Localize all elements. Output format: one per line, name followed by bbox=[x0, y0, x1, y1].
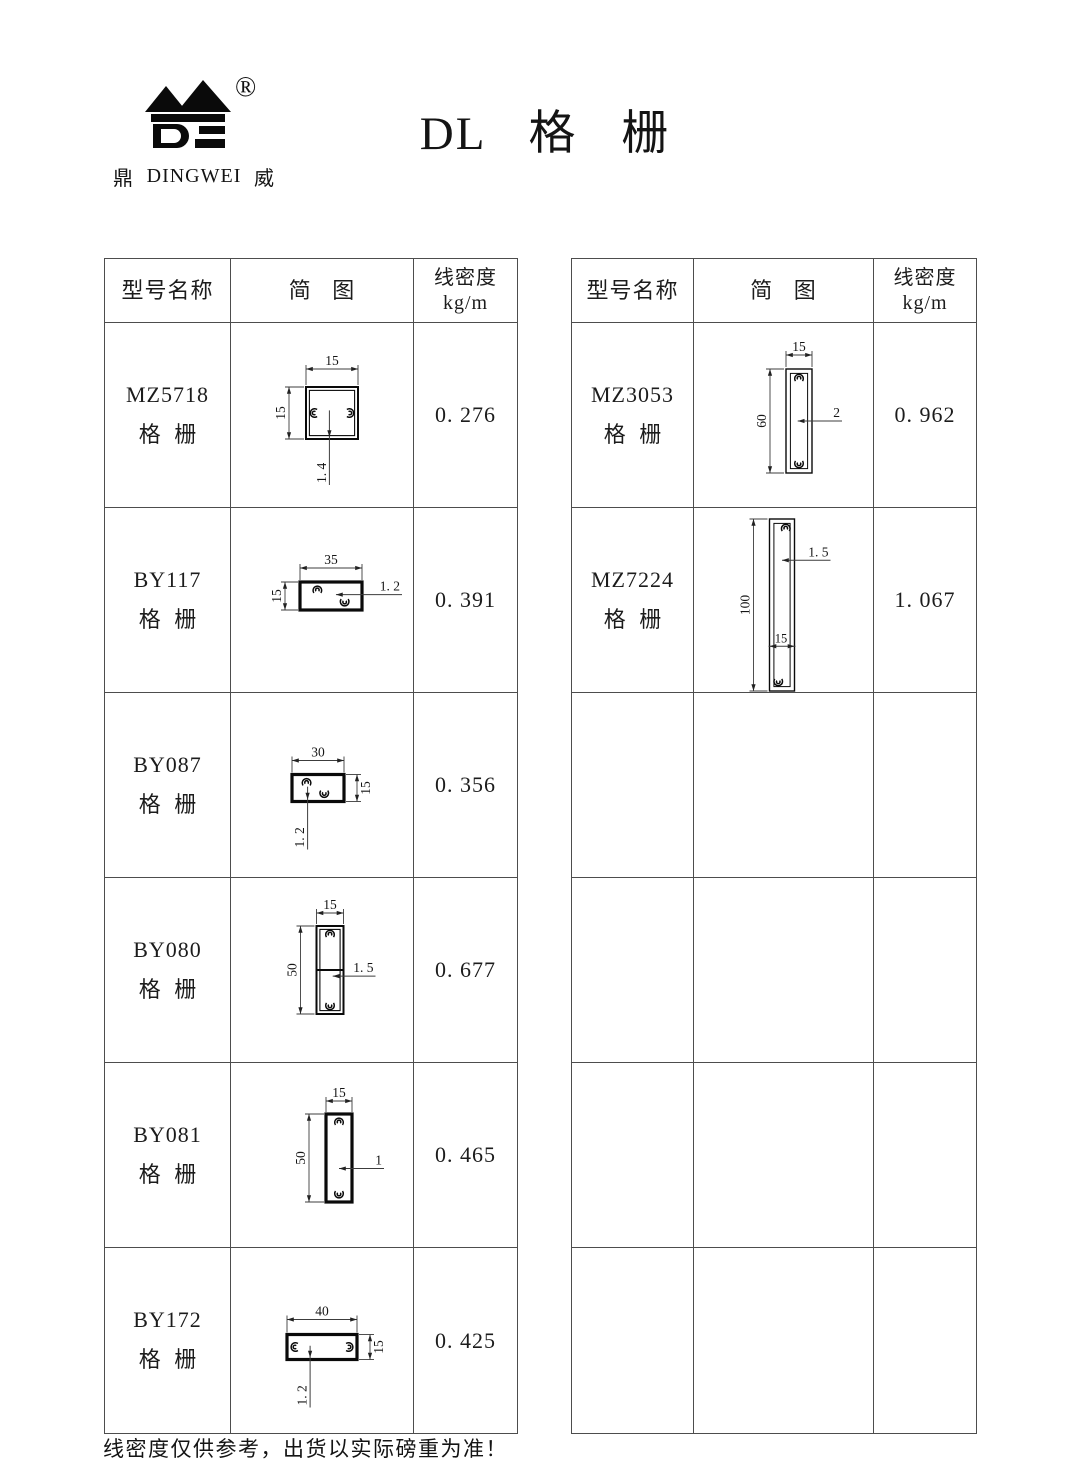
left-profile-table: 型号名称 简 图 线密度 kg/m MZ5718 格 栅 15151. 4 0.… bbox=[104, 258, 518, 1434]
catalog-page: ® 鼎 DINGWEI 威 DL 格 栅 型号名称 简 图 线密度 kg/m M… bbox=[0, 0, 1090, 1466]
profile-cross-section-diagram: 15602 bbox=[694, 323, 873, 507]
col-header-diagram: 简 图 bbox=[694, 259, 874, 323]
density-value-cell: 0. 677 bbox=[414, 878, 517, 1063]
model-name-cell: BY117 格 栅 bbox=[105, 508, 231, 693]
profile-diagram-cell bbox=[694, 1063, 874, 1248]
model-name-cell bbox=[572, 693, 694, 878]
svg-text:1. 5: 1. 5 bbox=[353, 960, 374, 975]
svg-text:2: 2 bbox=[833, 405, 840, 420]
profile-diagram-cell: 35151. 2 bbox=[231, 508, 414, 693]
svg-text:15: 15 bbox=[269, 589, 284, 603]
svg-text:15: 15 bbox=[325, 353, 339, 368]
profile-cross-section-diagram: 15501. 5 bbox=[231, 878, 413, 1062]
profile-diagram-cell: 15151. 4 bbox=[231, 323, 414, 508]
profile-cross-section-diagram: 30151. 2 bbox=[231, 693, 413, 877]
svg-text:35: 35 bbox=[324, 552, 338, 567]
model-name-cell: BY081 格 栅 bbox=[105, 1063, 231, 1248]
density-value-cell bbox=[874, 1063, 976, 1248]
logo-cn-right: 威 bbox=[254, 162, 275, 191]
col-header-diagram: 简 图 bbox=[231, 259, 414, 323]
svg-text:1. 4: 1. 4 bbox=[314, 463, 329, 484]
svg-text:15: 15 bbox=[792, 339, 806, 354]
svg-text:1. 2: 1. 2 bbox=[292, 827, 307, 847]
profile-cross-section-diagram: 40151. 2 bbox=[231, 1248, 413, 1433]
profile-diagram-cell: 15501 bbox=[231, 1063, 414, 1248]
svg-text:15: 15 bbox=[332, 1085, 346, 1100]
model-name-cell: BY172 格 栅 bbox=[105, 1248, 231, 1433]
density-value-cell: 0. 425 bbox=[414, 1248, 517, 1433]
density-value-cell: 0. 356 bbox=[414, 693, 517, 878]
svg-text:15: 15 bbox=[775, 631, 788, 645]
svg-text:15: 15 bbox=[371, 1340, 386, 1354]
density-value-cell: 0. 962 bbox=[874, 323, 976, 508]
svg-text:1. 2: 1. 2 bbox=[380, 579, 400, 594]
svg-text:15: 15 bbox=[273, 406, 288, 420]
svg-text:100: 100 bbox=[738, 595, 753, 616]
logo-caption: 鼎 DINGWEI 威 bbox=[113, 162, 275, 191]
col-header-model: 型号名称 bbox=[105, 259, 231, 323]
svg-text:1: 1 bbox=[375, 1153, 382, 1168]
density-value-cell bbox=[874, 693, 976, 878]
logo-en: DINGWEI bbox=[147, 165, 242, 188]
svg-text:15: 15 bbox=[323, 897, 337, 912]
profile-cross-section-diagram: 15501 bbox=[231, 1063, 413, 1247]
model-name-cell: MZ3053 格 栅 bbox=[572, 323, 694, 508]
model-name-cell: BY087 格 栅 bbox=[105, 693, 231, 878]
density-value-cell: 1. 067 bbox=[874, 508, 976, 693]
empty-diagram-cell bbox=[694, 1248, 873, 1433]
empty-diagram-cell bbox=[694, 1063, 873, 1247]
profile-diagram-cell bbox=[694, 693, 874, 878]
model-name-cell bbox=[572, 1063, 694, 1248]
profile-cross-section-diagram: 35151. 2 bbox=[231, 508, 413, 692]
model-name-cell: MZ7224 格 栅 bbox=[572, 508, 694, 693]
profile-diagram-cell bbox=[694, 1248, 874, 1433]
col-header-model: 型号名称 bbox=[572, 259, 694, 323]
svg-text:50: 50 bbox=[285, 963, 300, 977]
density-value-cell: 0. 276 bbox=[414, 323, 517, 508]
model-name-cell bbox=[572, 878, 694, 1063]
profile-diagram-cell: 1001. 515 bbox=[694, 508, 874, 693]
profile-diagram-cell: 30151. 2 bbox=[231, 693, 414, 878]
density-value-cell bbox=[874, 878, 976, 1063]
svg-text:1. 2: 1. 2 bbox=[295, 1385, 310, 1405]
model-name-cell: MZ5718 格 栅 bbox=[105, 323, 231, 508]
profile-diagram-cell: 40151. 2 bbox=[231, 1248, 414, 1433]
profile-diagram-cell: 15501. 5 bbox=[231, 878, 414, 1063]
svg-text:60: 60 bbox=[754, 414, 769, 428]
profile-cross-section-diagram: 15151. 4 bbox=[231, 323, 413, 507]
empty-diagram-cell bbox=[694, 878, 873, 1062]
svg-text:30: 30 bbox=[311, 745, 325, 760]
profile-diagram-cell: 15602 bbox=[694, 323, 874, 508]
density-value-cell: 0. 465 bbox=[414, 1063, 517, 1248]
model-name-cell bbox=[572, 1248, 694, 1433]
footer-note: 线密度仅供参考，出货以实际磅重为准！ bbox=[103, 1433, 508, 1463]
svg-text:1. 5: 1. 5 bbox=[808, 544, 829, 559]
page-title: DL 格 栅 bbox=[0, 94, 1090, 163]
density-value-cell: 0. 391 bbox=[414, 508, 517, 693]
col-header-density: 线密度 kg/m bbox=[874, 259, 976, 323]
density-value-cell bbox=[874, 1248, 976, 1433]
svg-text:50: 50 bbox=[293, 1151, 308, 1165]
right-profile-table: 型号名称 简 图 线密度 kg/m MZ3053 格 栅 15602 0. 96… bbox=[571, 258, 977, 1434]
model-name-cell: BY080 格 栅 bbox=[105, 878, 231, 1063]
profile-cross-section-diagram: 1001. 515 bbox=[694, 508, 873, 692]
empty-diagram-cell bbox=[694, 693, 873, 877]
svg-text:40: 40 bbox=[315, 1304, 329, 1319]
logo-cn-left: 鼎 bbox=[113, 162, 134, 191]
col-header-density: 线密度 kg/m bbox=[414, 259, 517, 323]
profile-diagram-cell bbox=[694, 878, 874, 1063]
svg-text:15: 15 bbox=[358, 781, 373, 795]
